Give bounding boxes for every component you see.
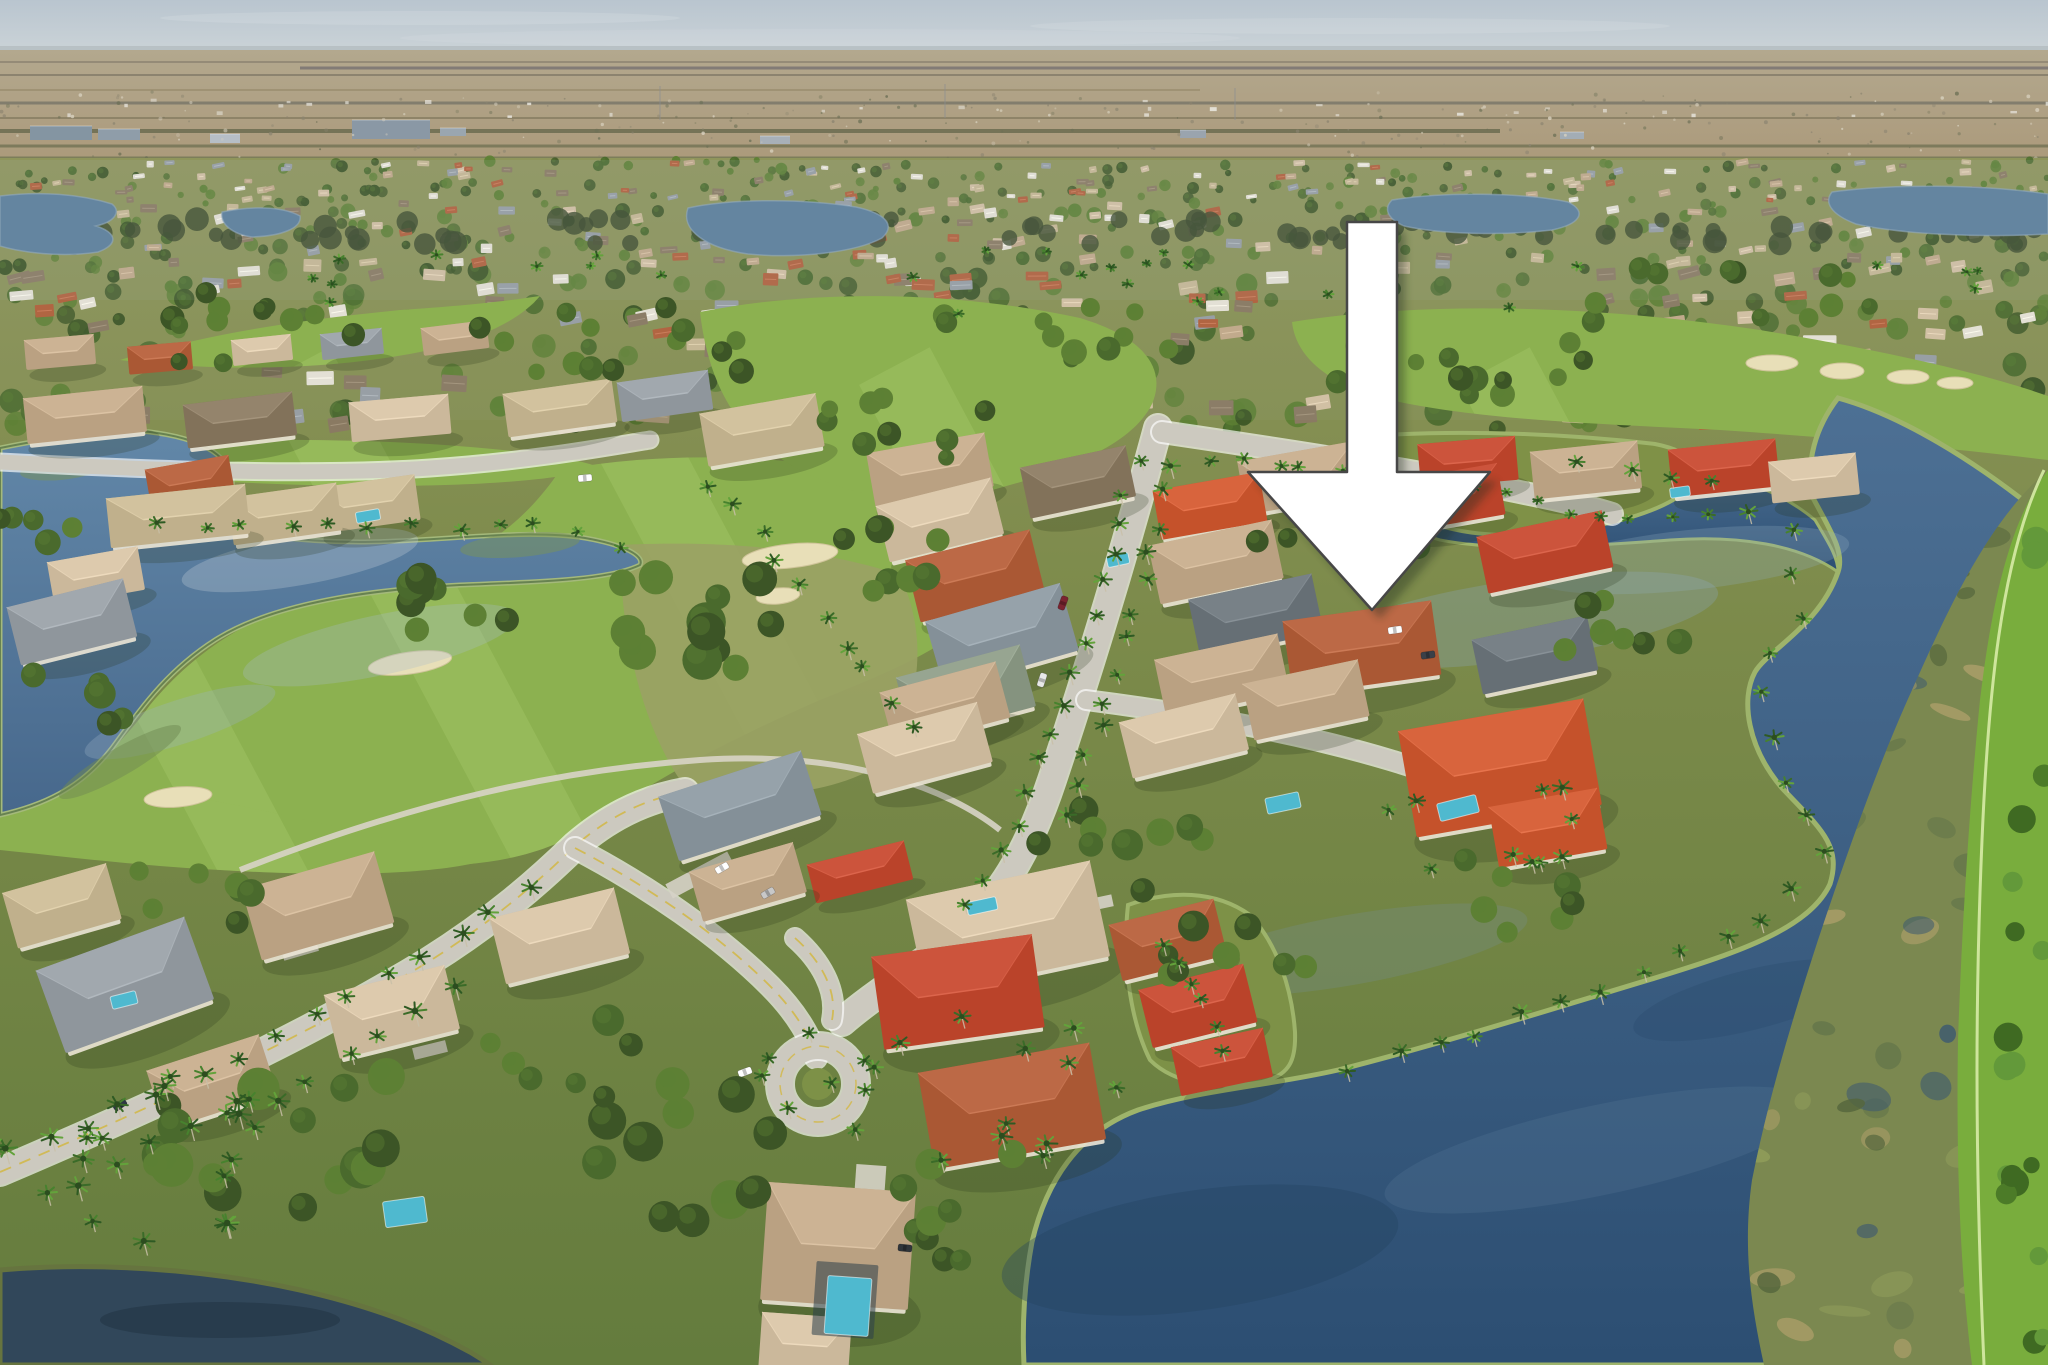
sand-bunker xyxy=(1746,355,1798,371)
aerial-photo-canvas xyxy=(0,0,2048,1365)
car xyxy=(578,474,593,482)
sky xyxy=(0,0,2048,58)
distant-plain xyxy=(0,50,2048,168)
sand-bunker xyxy=(1887,370,1929,384)
swimming-pool xyxy=(1669,486,1690,499)
car xyxy=(898,1244,913,1252)
sand-bunker xyxy=(1820,363,1864,379)
sand-bunker xyxy=(1937,377,1973,389)
swimming-pool xyxy=(824,1276,872,1337)
aerial-photo xyxy=(0,0,2048,1365)
swimming-pool xyxy=(382,1196,427,1228)
